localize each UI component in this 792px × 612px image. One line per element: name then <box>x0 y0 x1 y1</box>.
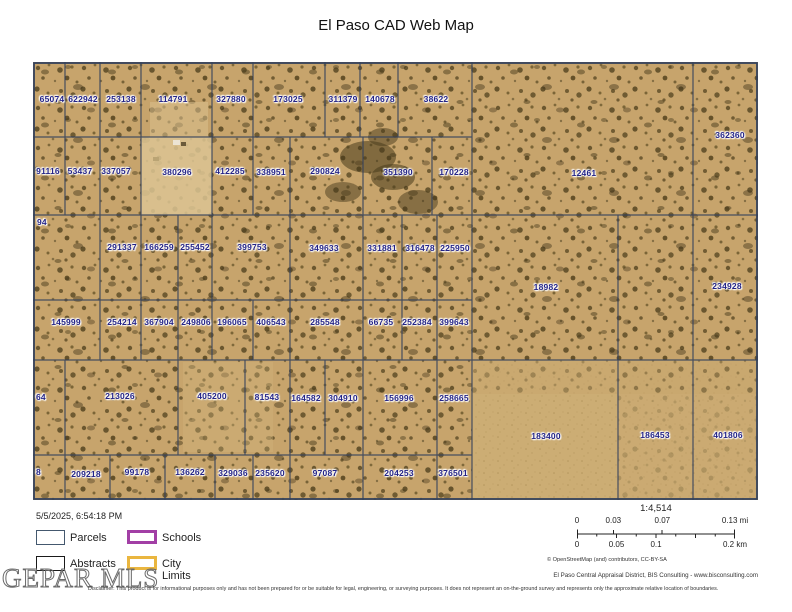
parcel-label: 311379 <box>328 94 357 104</box>
parcel-label: 401806 <box>713 430 743 440</box>
scale-tick-label: 0 <box>575 516 579 525</box>
parcel-label: 316478 <box>405 243 435 253</box>
parcel-label: 213026 <box>105 391 135 401</box>
parcel-label: 225950 <box>440 243 470 253</box>
parcel-label: 291337 <box>107 242 137 252</box>
osm-attribution: © OpenStreetMap (and) contributors, CC-B… <box>547 557 667 563</box>
scale-tick-label: 0.07 <box>655 516 671 525</box>
parcel-label: 173025 <box>273 94 303 104</box>
parcel-label: 329036 <box>218 468 248 478</box>
parcel-label: 412285 <box>215 166 245 176</box>
parcel-label: 64 <box>36 392 46 402</box>
parcel-label: 204253 <box>384 468 414 478</box>
parcel-label: 622942 <box>68 94 98 104</box>
parcel-label: 81543 <box>255 392 280 402</box>
parcel-label: 380296 <box>162 167 192 177</box>
parcel-label: 53437 <box>68 166 93 176</box>
parcel-label: 258665 <box>439 393 469 403</box>
parcel-label: 97087 <box>313 468 338 478</box>
parcel-label-layer: 6507462294225313811479132788017302531137… <box>33 62 758 500</box>
scale-ratio: 1:4,514 <box>577 503 735 514</box>
scale-tick-label: 0.03 <box>606 516 622 525</box>
parcel-label: 362360 <box>715 130 745 140</box>
parcel-label: 255452 <box>180 242 210 252</box>
disclaimer-text: Disclaimer: This product is for informat… <box>88 586 758 592</box>
parcel-label: 254214 <box>107 317 137 327</box>
appraisal-credit: El Paso Central Appraisal District, BIS … <box>553 572 758 579</box>
parcel-label: 376501 <box>438 468 468 478</box>
parcel-label: 18982 <box>534 282 559 292</box>
parcel-label: 337057 <box>101 166 131 176</box>
parcel-label: 406543 <box>256 317 286 327</box>
parcel-label: 234928 <box>712 281 742 291</box>
parcel-label: 235620 <box>255 468 285 478</box>
parcel-label: 327880 <box>216 94 246 104</box>
parcel-label: 331881 <box>367 243 397 253</box>
parcel-label: 94 <box>37 217 47 227</box>
page-title: El Paso CAD Web Map <box>0 17 792 34</box>
scale-tick-label: 0.1 <box>650 540 661 549</box>
parcel-label: 399753 <box>237 242 267 252</box>
scale-bar-graphic <box>577 529 735 539</box>
parcel-label: 405200 <box>197 391 227 401</box>
parcel-label: 183400 <box>531 431 561 441</box>
parcel-label: 136262 <box>175 467 205 477</box>
parcel-label: 66735 <box>369 317 394 327</box>
parcel-label: 249806 <box>181 317 211 327</box>
parcel-label: 304910 <box>328 393 358 403</box>
scale-tick-label: 0.2 km <box>723 540 747 549</box>
scale-km-labels: 00.050.10.2 km <box>545 540 792 550</box>
map-image: 6507462294225313811479132788017302531137… <box>33 62 758 500</box>
parcel-label: 99178 <box>125 467 150 477</box>
parcel-label: 285548 <box>310 317 340 327</box>
parcel-label: 114791 <box>158 94 187 104</box>
parcel-label: 170228 <box>439 167 469 177</box>
parcels-label: Parcels <box>70 532 107 544</box>
parcel-label: 156996 <box>384 393 414 403</box>
parcel-label: 12461 <box>572 168 597 178</box>
parcel-label: 91116 <box>36 166 60 176</box>
scale-mi-labels: 00.030.070.13 mi <box>545 516 792 526</box>
parcel-label: 140678 <box>365 94 395 104</box>
parcel-label: 338951 <box>256 167 286 177</box>
parcel-label: 8 <box>36 467 41 477</box>
scale-tick-label: 0 <box>575 540 579 549</box>
parcel-label: 399643 <box>439 317 469 327</box>
parcel-label: 65074 <box>40 94 65 104</box>
map-timestamp: 5/5/2025, 6:54:18 PM <box>36 511 122 521</box>
page: El Paso CAD Web Map <box>0 0 792 612</box>
parcel-label: 290824 <box>310 166 340 176</box>
parcels-swatch <box>36 530 65 545</box>
schools-swatch <box>127 530 157 544</box>
parcel-label: 209218 <box>71 469 101 479</box>
parcel-label: 367904 <box>144 317 174 327</box>
citylimits-label: City Limits <box>162 558 191 582</box>
scale-tick-label: 0.13 mi <box>722 516 748 525</box>
scale-tick-label: 0.05 <box>609 540 625 549</box>
parcel-label: 349633 <box>309 243 339 253</box>
scale-block: 1:4,514 00.030.070.13 mi 00.050.10.2 km … <box>545 503 792 565</box>
parcel-label: 351390 <box>383 167 413 177</box>
parcel-label: 166259 <box>144 242 174 252</box>
schools-label: Schools <box>162 532 201 544</box>
parcel-label: 196065 <box>217 317 247 327</box>
parcel-label: 145999 <box>51 317 81 327</box>
parcel-label: 252384 <box>402 317 432 327</box>
parcel-label: 253138 <box>106 94 136 104</box>
parcel-label: 38622 <box>424 94 449 104</box>
parcel-label: 186453 <box>640 430 670 440</box>
parcel-label: 164582 <box>291 393 321 403</box>
